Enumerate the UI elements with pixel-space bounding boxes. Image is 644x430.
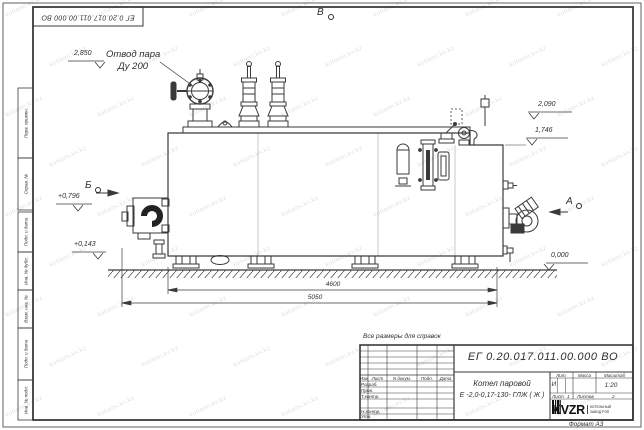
doc-number: ЕГ 0.20.017.011.00.000 ВО: [468, 351, 618, 363]
ground-line: [108, 270, 557, 278]
view-ref-circle: [328, 14, 334, 20]
lit-value: И: [551, 381, 556, 388]
scale-value: 1:20: [605, 382, 618, 389]
rev-col-izm: Изм: [360, 376, 368, 381]
elevation-marks: [56, 61, 588, 270]
rev-col-podp: Подп.: [421, 376, 433, 381]
burner-assembly: [122, 198, 169, 258]
water-level-gauges: [395, 140, 449, 190]
elevation-burner-axis: +0,796: [58, 193, 80, 200]
roof-fittings: [439, 95, 489, 145]
side-stamp-label: Инв. № дубл.: [23, 257, 28, 285]
elevation-shell-top: 1,746: [535, 127, 553, 134]
side-stamp-label: Справ. №: [23, 174, 28, 194]
boiler-drawing: [0, 0, 644, 430]
mass-label: Масса: [578, 373, 591, 378]
boiler-shell: [168, 127, 503, 256]
sheets-value: 2: [612, 394, 615, 399]
sig-row-prov: Пров.: [361, 388, 373, 393]
view-label-right: А: [566, 196, 573, 207]
rev-col-ndoc: N докум.: [393, 376, 411, 381]
lit-label: Лит.: [556, 373, 567, 378]
safety-valve-1: [239, 62, 259, 128]
company-name: КОТЕЛЬНЫЙ ЗАВОД РЭП: [587, 405, 611, 415]
product-name-line2: Е -2,0-0,17-130- ГЛЖ ( Ж ): [460, 392, 545, 399]
drawing-sheet: kotlami.kv.kzkotlami.kv.kzkotlami.kv.kzk…: [0, 0, 644, 430]
support-skids: [173, 256, 478, 269]
view-label-left: Б: [85, 180, 92, 191]
sig-row-tkontr: Т.контр.: [361, 394, 380, 399]
side-stamp-label: Подп. и дата: [23, 218, 28, 246]
rev-col-list: Лист: [372, 376, 384, 381]
rev-col-data: Дата: [440, 376, 452, 381]
sig-row-utv: Утв.: [361, 414, 371, 419]
kvzr-logo-icon: [552, 400, 561, 414]
side-stamp-label: Инв. № подл.: [23, 386, 28, 414]
sig-row-razrab: Разраб.: [361, 382, 378, 387]
reference-note: Все размеры для справок: [363, 333, 441, 340]
steam-outlet-callout-line1: Отвод пара: [106, 49, 160, 60]
top-stamp-number: ЕГ 0.20.017.011.00.000 ВО: [41, 13, 135, 20]
lifting-lug-front: [218, 121, 232, 127]
feed-pump: [503, 181, 538, 262]
sheet-value: 1: [567, 394, 570, 399]
side-stamp-label: Взам. инв. №: [23, 295, 28, 323]
elevation-steam-outlet: 2,850: [74, 50, 92, 57]
steam-outlet-valve: [171, 69, 213, 127]
view-ref-circle: [95, 187, 101, 193]
product-name-line1: Котел паровой: [473, 379, 530, 388]
elevation-drain: +0,143: [74, 241, 96, 248]
safety-valve-2: [268, 62, 288, 128]
dim-shell-length: 4600: [326, 281, 340, 288]
side-stamp-label: Подп. и дата: [23, 340, 28, 368]
view-label-top: В: [317, 7, 324, 18]
elevation-fittings-top: 2,090: [538, 101, 556, 108]
sig-row-nkontr: Н.контр.: [361, 409, 380, 414]
view-arrows: [96, 62, 568, 215]
sheets-label: Листов: [577, 394, 594, 399]
side-stamp-label: Перв. примен.: [23, 108, 28, 138]
steam-outlet-callout-line2: Ду 200: [118, 61, 148, 72]
company-name-line2: ЗАВОД РЭП: [590, 410, 611, 415]
view-ref-circle: [576, 203, 582, 209]
format-label: Формат А3: [569, 421, 603, 428]
elevation-ground: 0,000: [551, 252, 569, 259]
company-logo-block: KVZR КОТЕЛЬНЫЙ ЗАВОД РЭП: [552, 400, 632, 419]
sheet-label: Лист: [552, 394, 564, 399]
scale-label: Масштаб: [604, 373, 625, 378]
leader-line: [160, 62, 193, 86]
dim-overall-length: 5050: [308, 294, 322, 301]
